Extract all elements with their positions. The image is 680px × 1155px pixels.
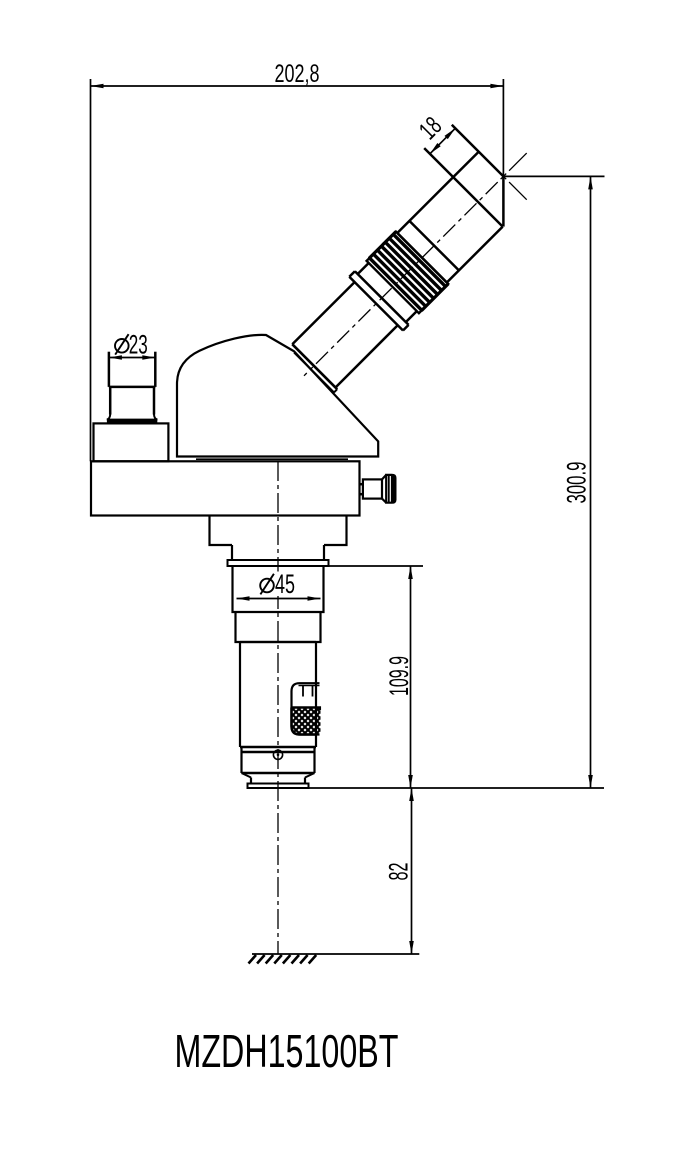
svg-text:MZDH15100BT: MZDH15100BT (175, 1025, 399, 1077)
svg-text:18: 18 (414, 112, 447, 145)
svg-text:45: 45 (275, 569, 295, 599)
svg-text:202,8: 202,8 (275, 60, 320, 88)
svg-text:109.9: 109.9 (384, 656, 414, 696)
svg-text:300.9: 300.9 (561, 462, 591, 504)
svg-text:23: 23 (129, 329, 148, 359)
svg-text:82: 82 (383, 863, 413, 881)
